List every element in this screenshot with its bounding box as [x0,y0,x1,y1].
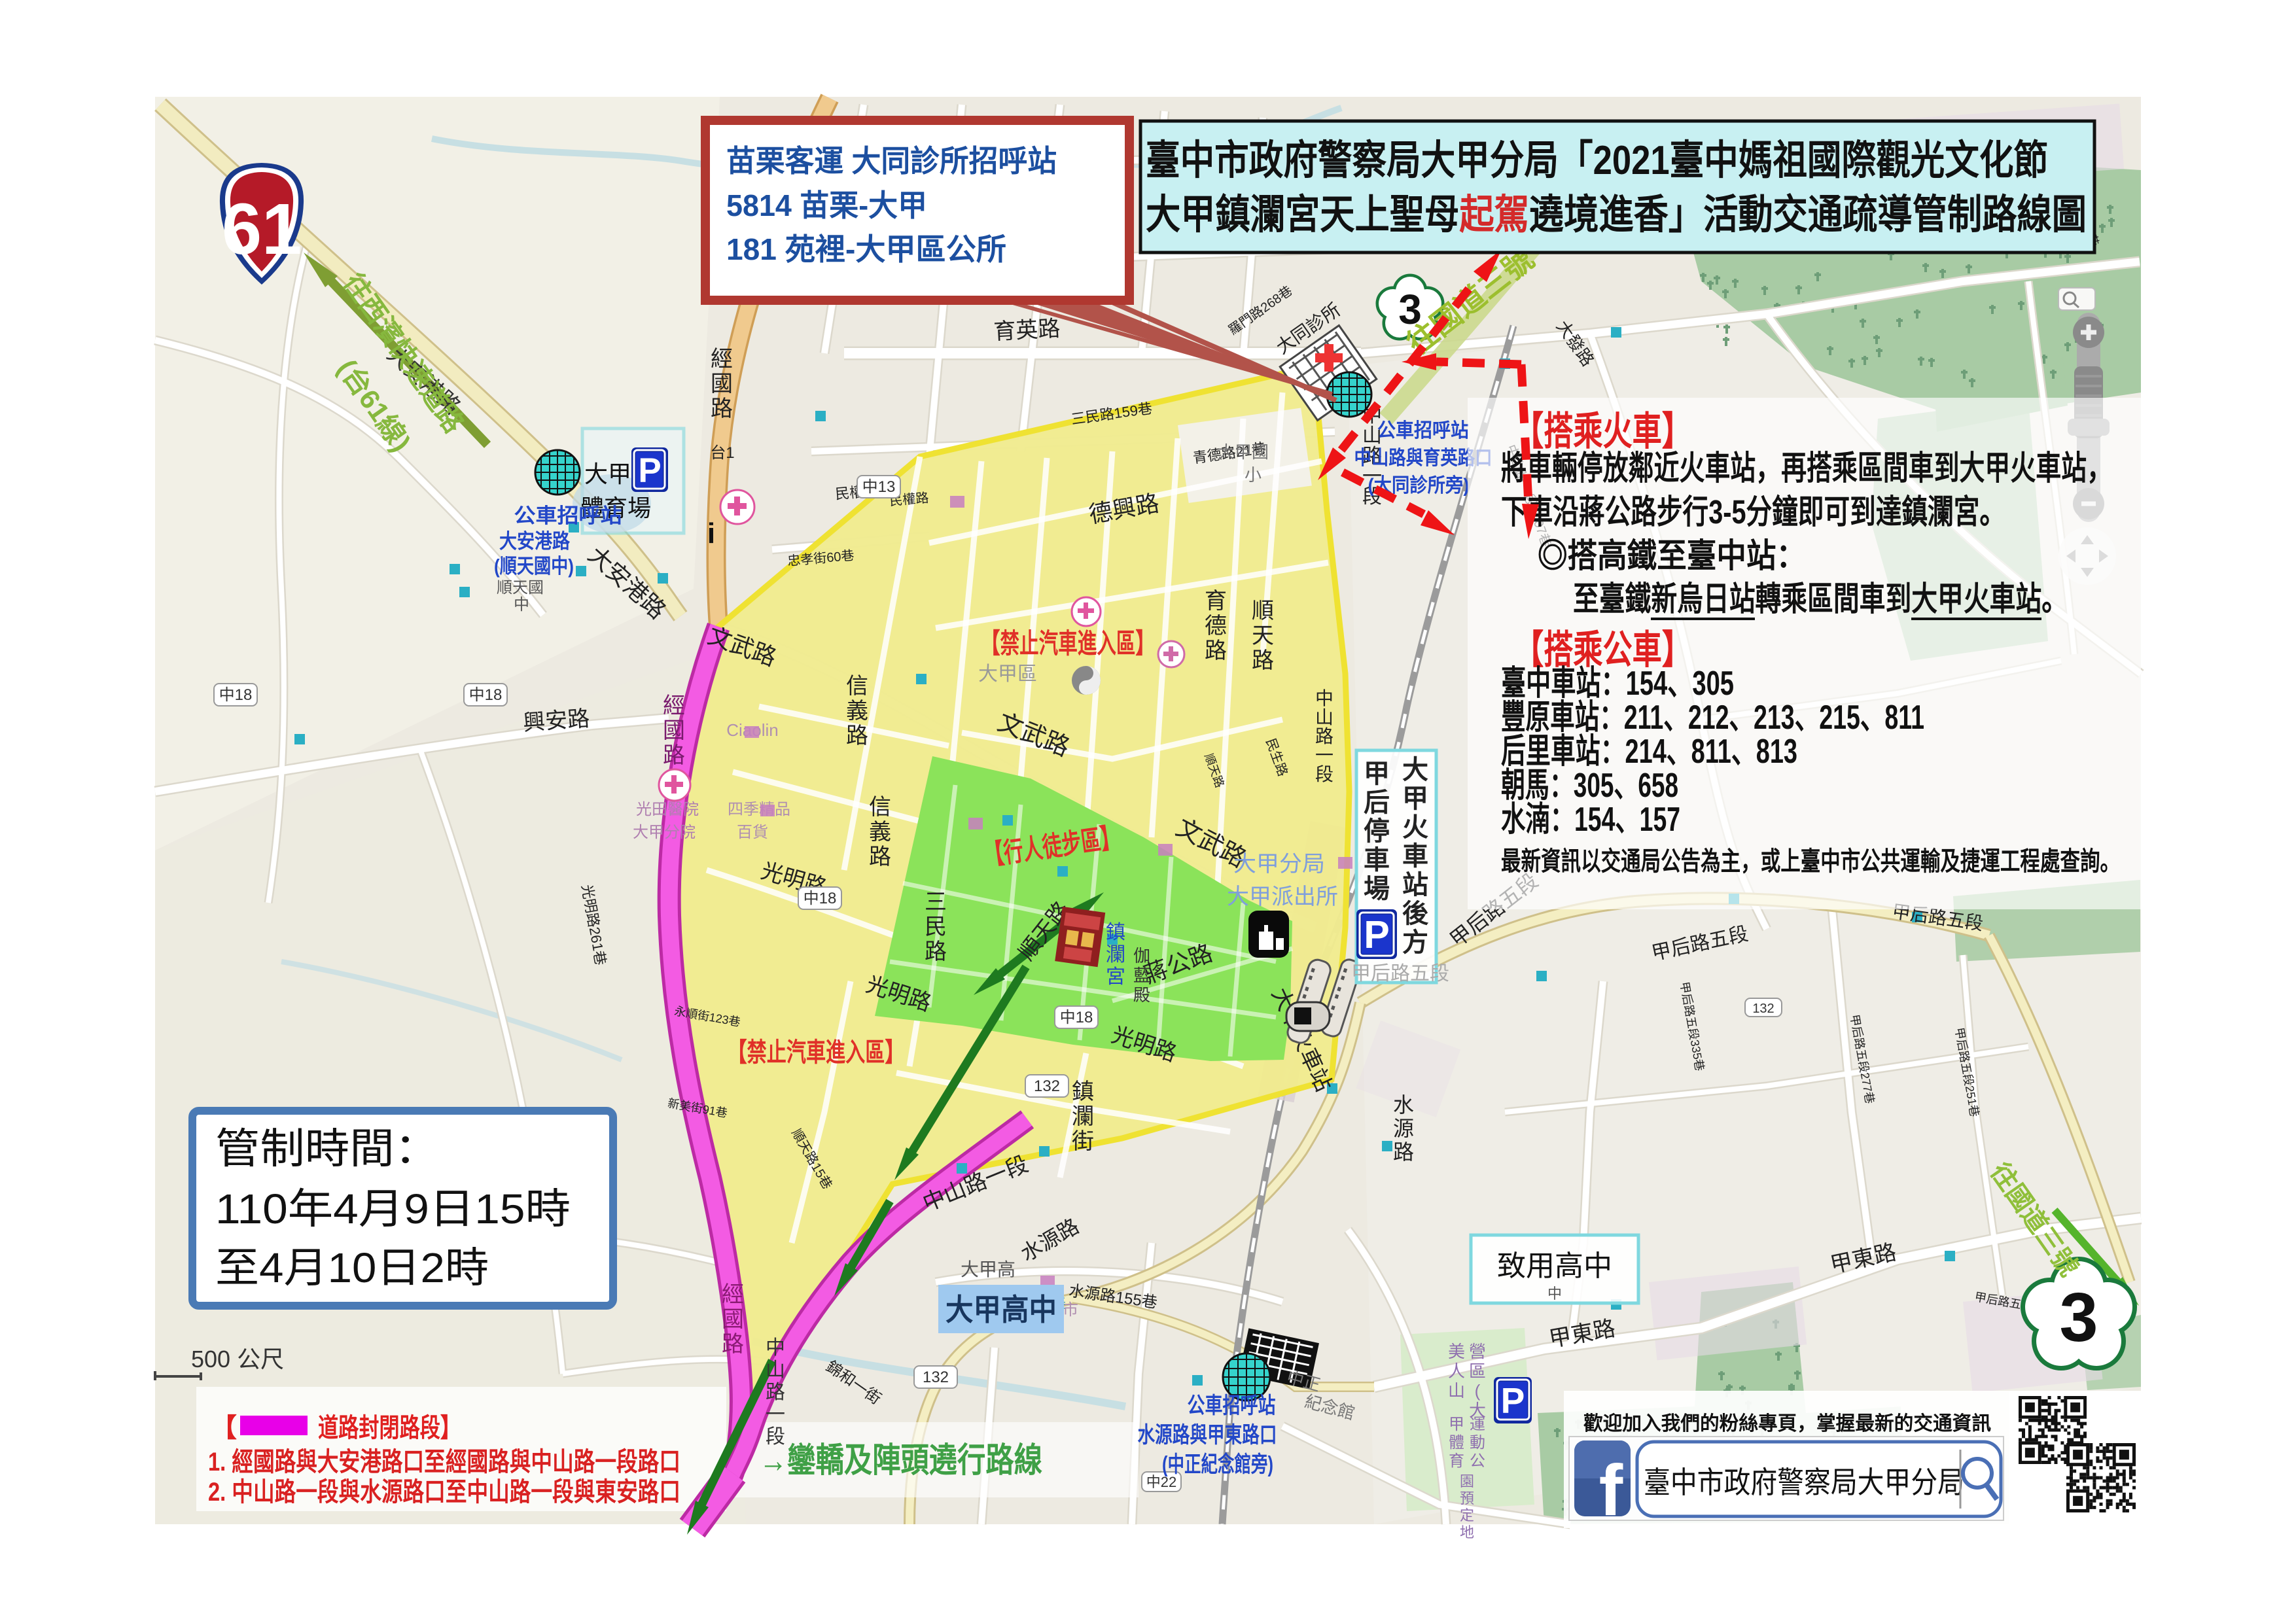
svg-text:將車輛停放鄰近火車站，再搭乘區間車到大甲火車站，: 將車輛停放鄰近火車站，再搭乘區間車到大甲火車站， [1501,449,2112,487]
svg-text:水源路: 水源路 [1393,1093,1414,1164]
svg-text:至臺鐵新烏日站轉乘區間車到大甲火車站。: 至臺鐵新烏日站轉乘區間車到大甲火車站。 [1573,580,2068,618]
svg-text:中18: 中18 [469,686,503,704]
svg-text:中18: 中18 [219,686,253,704]
svg-text:后里車站：214、811、813: 后里車站：214、811、813 [1501,733,1797,771]
svg-text:中山路一段: 中山路一段 [1315,688,1333,784]
svg-text:百貨: 百貨 [737,824,768,841]
svg-text:中18: 中18 [804,890,837,907]
svg-text:育德路: 育德路 [1205,589,1227,663]
svg-text:最新資訊以交通局公告為主，或上臺中市公共運輸及捷運工程處查詢: 最新資訊以交通局公告為主，或上臺中市公共運輸及捷運工程處查詢。 [1501,847,2120,876]
svg-text:至4月10日2時: 至4月10日2時 [215,1244,489,1291]
svg-text:61: 61 [222,189,302,270]
svg-text:興安路: 興安路 [522,707,590,736]
svg-text:豐原車站：211、212、213、215、811: 豐原車站：211、212、213、215、811 [1501,699,1924,737]
svg-text:鎮瀾宮: 鎮瀾宮 [1106,922,1125,988]
svg-text:順天路: 順天路 [1252,599,1274,673]
svg-text:→鑾轎及陣頭遶行路線: →鑾轎及陣頭遶行路線 [759,1442,1042,1480]
svg-text:(中正紀念館旁): (中正紀念館旁) [1162,1452,1273,1477]
svg-text:甲后停車場: 甲后停車場 [1364,759,1390,903]
svg-text:苗栗客運 大同診所招呼站: 苗栗客運 大同診所招呼站 [726,144,1057,178]
svg-text:f: f [1599,1450,1623,1531]
svg-text:500 公尺: 500 公尺 [191,1346,284,1372]
svg-text:歡迎加入我們的粉絲專頁，掌握最新的交通資訊: 歡迎加入我們的粉絲專頁，掌握最新的交通資訊 [1583,1412,1991,1435]
svg-text:伽藍殿: 伽藍殿 [1133,946,1150,1005]
svg-text:經國路: 經國路 [663,693,685,768]
svg-text:公車招呼站: 公車招呼站 [1377,420,1469,442]
svg-text:3: 3 [2060,1279,2098,1356]
svg-text:【禁止汽車進入區】: 【禁止汽車進入區】 [981,628,1155,659]
svg-text:順天國: 順天國 [497,579,544,597]
svg-text:運動公: 運動公 [1470,1416,1485,1470]
svg-text:大甲: 大甲 [584,461,631,487]
svg-text:園預定地: 園預定地 [1460,1473,1474,1541]
svg-text:大甲區: 大甲區 [978,663,1037,685]
svg-text:大甲分院: 大甲分院 [633,824,696,841]
svg-text:育英路: 育英路 [993,316,1061,344]
svg-text:經國路: 經國路 [711,347,733,421]
svg-text:大安港路: 大安港路 [499,530,571,553]
svg-text:美人山: 美人山 [1448,1342,1465,1401]
svg-text:管制時間：: 管制時間： [215,1125,439,1172]
svg-text:經國路: 經國路 [722,1282,744,1357]
svg-text:信義路: 信義路 [846,674,868,748]
svg-text:大甲國: 大甲國 [1218,442,1269,462]
svg-text:朝馬：305、658: 朝馬：305、658 [1501,767,1678,805]
svg-text:致用高中: 致用高中 [1497,1250,1612,1282]
svg-text:【搭乘火車】: 【搭乘火車】 [1514,410,1691,453]
svg-text:(順天國中): (順天國中) [494,555,574,578]
svg-text:【: 【 [211,1414,237,1442]
svg-text:中: 中 [514,596,529,614]
svg-text:甲體育: 甲體育 [1449,1416,1464,1470]
svg-text:道路封閉路段】: 道路封閉路段】 [318,1414,461,1442]
svg-text:臺中市政府警察局大甲分局「2021臺中媽祖國際觀光文化節: 臺中市政府警察局大甲分局「2021臺中媽祖國際觀光文化節 [1146,138,2048,183]
svg-text:P: P [638,451,661,490]
svg-text:110年4月9日15時: 110年4月9日15時 [215,1185,571,1232]
svg-text:鎮瀾街: 鎮瀾街 [1072,1079,1094,1154]
svg-text:181 苑裡-大甲區公所: 181 苑裡-大甲區公所 [726,232,1006,266]
svg-text:小: 小 [1245,465,1262,485]
svg-text:5814 苗栗-大甲: 5814 苗栗-大甲 [726,188,927,222]
svg-text:大甲鎮瀾宮天上聖母起駕遶境進香」活動交通疏導管制路線圖: 大甲鎮瀾宮天上聖母起駕遶境進香」活動交通疏導管制路線圖 [1146,192,2087,237]
svg-text:大甲高: 大甲高 [961,1259,1016,1280]
svg-text:【禁止汽車進入區】: 【禁止汽車進入區】 [728,1038,905,1067]
svg-text:i: i [707,517,715,550]
svg-text:P: P [1364,913,1389,956]
svg-text:132: 132 [1752,1002,1774,1016]
svg-text:大甲派出所: 大甲派出所 [1227,884,1338,909]
svg-text:水湳：154、157: 水湳：154、157 [1501,801,1680,839]
svg-text:1. 經國路與大安港路口至經國路與中山路一段路口: 1. 經國路與大安港路口至經國路與中山路一段路口 [208,1448,680,1476]
svg-text:水源路與甲東路口: 水源路與甲東路口 [1138,1423,1277,1448]
svg-text:台1: 台1 [710,444,734,462]
svg-text:中13: 中13 [862,478,896,496]
svg-text:下車沿蔣公路步行3-5分鐘即可到達鎮瀾宮。: 下車沿蔣公路步行3-5分鐘即可到達鎮瀾宮。 [1501,493,2005,531]
svg-text:臺中車站：154、305: 臺中車站：154、305 [1501,665,1734,703]
svg-text:光田醫院: 光田醫院 [636,801,699,818]
svg-text:臺中市政府警察局大甲分局: 臺中市政府警察局大甲分局 [1644,1465,1964,1499]
svg-text:大甲火車站後方: 大甲火車站後方 [1402,756,1429,957]
svg-text:信義路: 信義路 [869,795,891,869]
svg-text:甲后路五段: 甲后路五段 [1351,963,1449,985]
svg-text:P: P [1501,1380,1525,1421]
svg-text:中18: 中18 [1060,1009,1093,1026]
svg-text:◎搭高鐵至臺中站：: ◎搭高鐵至臺中站： [1538,537,1806,574]
svg-text:大甲高中: 大甲高中 [945,1293,1057,1327]
svg-text:公車招呼站: 公車招呼站 [1188,1393,1276,1418]
svg-text:中山路一段: 中山路一段 [766,1337,785,1448]
svg-text:中: 中 [1547,1285,1562,1302]
svg-text:132: 132 [1034,1077,1060,1095]
svg-text:大甲分局: 大甲分局 [1233,852,1325,877]
svg-text:四季精品: 四季精品 [728,801,790,818]
svg-text:公車招呼站: 公車招呼站 [514,504,622,527]
svg-text:132: 132 [923,1369,949,1386]
svg-text:三民路: 三民路 [925,890,947,964]
svg-text:2. 中山路一段與水源路口至中山路一段與東安路口: 2. 中山路一段與水源路口至中山路一段與東安路口 [208,1478,680,1507]
